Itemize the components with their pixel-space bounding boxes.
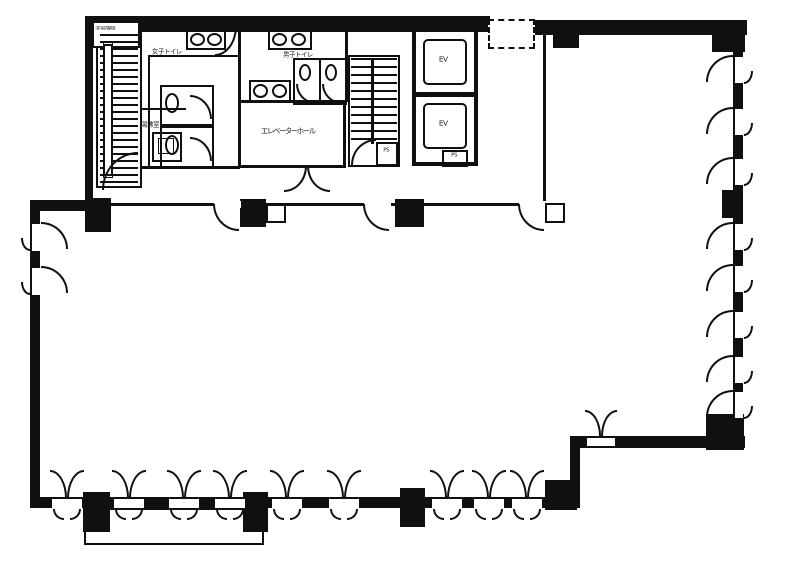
structural-column <box>712 20 745 52</box>
casement-window-icon <box>327 470 344 498</box>
label-pipe-shaft-ev: PS <box>443 153 465 159</box>
window-outer-tick-icon <box>513 509 524 520</box>
window-opening <box>735 224 743 250</box>
plumbing-fixture-icon <box>272 84 287 98</box>
structural-column <box>400 488 425 527</box>
casement-window-icon <box>129 470 146 498</box>
window-outer-tick-icon <box>744 280 753 293</box>
casement-window-icon <box>112 470 129 498</box>
window-opening <box>512 499 542 508</box>
casement-window-icon <box>706 55 733 82</box>
window-outer-tick-icon <box>475 509 486 520</box>
partition-wall <box>92 203 545 206</box>
casement-window-icon <box>706 157 733 184</box>
window-opening <box>735 57 743 83</box>
label-pipe-shaft-stair: PS <box>377 148 395 154</box>
door-swing-icon <box>213 204 239 231</box>
window-outer-tick-icon <box>330 509 341 520</box>
label-womens-toilet: 女子トイレ <box>152 49 182 55</box>
casement-window-icon <box>230 470 247 498</box>
casement-window-icon <box>706 390 733 417</box>
structural-column <box>706 414 744 450</box>
label-kitchenette: 湯沸室 <box>141 122 159 128</box>
window-opening <box>114 499 144 508</box>
window-outer-tick-icon <box>21 238 30 251</box>
label-emergency-stair: 非常階段 <box>95 26 134 32</box>
window-opening <box>272 499 302 508</box>
window-outer-tick-icon <box>744 71 753 84</box>
stair-center-rail <box>371 58 374 144</box>
shaft-box <box>266 203 286 223</box>
window-outer-tick-icon <box>21 282 30 295</box>
window-outer-tick-icon <box>744 123 753 136</box>
window-outer-tick-icon <box>347 509 358 520</box>
window-outer-tick-icon <box>744 406 753 419</box>
structural-column <box>553 26 579 48</box>
casement-window-icon <box>41 222 68 249</box>
casement-window-icon <box>67 470 84 498</box>
window-opening <box>32 268 40 295</box>
casement-window-icon <box>489 470 506 498</box>
window-opening <box>432 499 462 508</box>
plumbing-fixture-icon <box>190 33 205 46</box>
window-opening <box>735 266 743 292</box>
casement-window-icon <box>344 470 361 498</box>
casement-window-icon <box>50 470 67 498</box>
window-outer-tick-icon <box>433 509 444 520</box>
structural-column <box>722 190 743 218</box>
window-opening <box>474 499 504 508</box>
shaft-box <box>545 203 565 223</box>
partition-wall <box>148 55 150 168</box>
window-outer-tick-icon <box>70 509 81 520</box>
window-opening <box>735 357 743 383</box>
partition-wall <box>238 28 241 102</box>
casement-window-icon <box>447 470 464 498</box>
window-opening <box>32 224 40 251</box>
label-elevator-1: EV <box>423 56 463 63</box>
structural-column <box>395 199 424 227</box>
plumbing-fixture-icon <box>165 93 179 113</box>
plumbing-fixture-icon <box>325 64 337 81</box>
structural-column <box>240 199 266 227</box>
stair-treads <box>351 58 397 142</box>
window-outer-tick-icon <box>273 509 284 520</box>
casement-window-icon <box>430 470 447 498</box>
plumbing-fixture-icon <box>253 84 268 98</box>
window-outer-tick-icon <box>530 509 541 520</box>
window-opening <box>329 499 359 508</box>
casement-window-icon <box>706 310 733 337</box>
window-outer-tick-icon <box>53 509 64 520</box>
casement-window-icon <box>706 222 733 249</box>
casement-window-icon <box>270 470 287 498</box>
window-opening <box>169 499 199 508</box>
stall-divider <box>319 58 321 105</box>
plumbing-fixture-icon <box>291 33 306 46</box>
casement-window-icon <box>527 470 544 498</box>
structural-column <box>545 480 577 510</box>
casement-window-icon <box>184 470 201 498</box>
casement-window-icon <box>706 264 733 291</box>
window-opening <box>587 438 615 446</box>
window-outer-tick-icon <box>744 326 753 339</box>
casement-window-icon <box>706 107 733 134</box>
elevator-shaft-divider <box>412 92 478 97</box>
window-opening <box>735 109 743 135</box>
casement-window-icon <box>585 410 601 436</box>
floor-plan-canvas: 非常階段 女子トイレ 男子トイレ 湯沸室 エレベーターホール EV EV PS … <box>0 0 787 568</box>
casement-window-icon <box>472 470 489 498</box>
plumbing-fixture-icon <box>299 64 311 81</box>
stair-stringer <box>103 44 113 176</box>
window-opening <box>52 499 82 508</box>
casement-window-icon <box>706 355 733 382</box>
structural-column <box>85 198 111 232</box>
label-mens-toilet: 男子トイレ <box>283 52 313 58</box>
plumbing-fixture-icon <box>165 135 179 155</box>
label-central-room: エレベーターホール <box>240 128 336 135</box>
label-elevator-2: EV <box>423 120 463 127</box>
window-outer-tick-icon <box>290 509 301 520</box>
casement-window-icon <box>510 470 527 498</box>
casement-window-icon <box>41 266 68 293</box>
dashed-hatch-outline <box>488 19 535 49</box>
door-swing-icon <box>284 166 307 192</box>
door-swing-icon <box>518 204 544 231</box>
plumbing-fixture-icon <box>272 33 287 46</box>
window-opening <box>735 159 743 185</box>
window-opening <box>735 312 743 338</box>
window-outer-tick-icon <box>492 509 503 520</box>
door-swing-icon <box>363 204 389 231</box>
pipe-shaft-box <box>376 142 398 166</box>
casement-window-icon <box>287 470 304 498</box>
casement-window-icon <box>601 410 617 436</box>
window-outer-tick-icon <box>744 173 753 186</box>
window-opening <box>735 392 743 418</box>
partition-wall <box>543 32 546 204</box>
window-opening <box>215 499 245 508</box>
window-outer-tick-icon <box>450 509 461 520</box>
casement-window-icon <box>167 470 184 498</box>
door-swing-icon <box>215 26 237 56</box>
casement-window-icon <box>213 470 230 498</box>
window-outer-tick-icon <box>744 238 753 251</box>
door-swing-icon <box>307 166 330 192</box>
window-outer-tick-icon <box>744 371 753 384</box>
